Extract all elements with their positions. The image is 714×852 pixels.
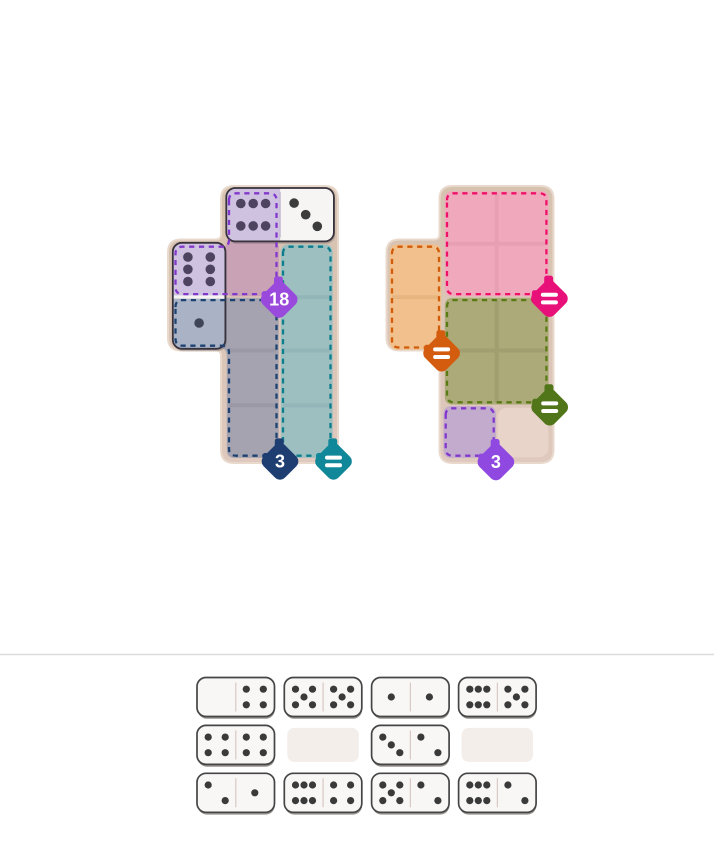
svg-text:3: 3 [491,452,501,472]
svg-text:18: 18 [269,290,289,310]
svg-text:3: 3 [275,451,285,471]
